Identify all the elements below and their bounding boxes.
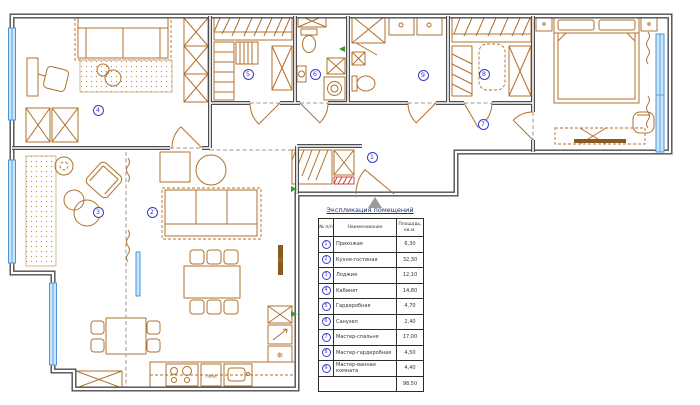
side-table <box>160 152 190 182</box>
room-marker-5: 5 <box>243 69 254 80</box>
master-bathroom-furniture <box>352 16 442 91</box>
curtain <box>647 32 650 64</box>
doors <box>172 103 533 194</box>
vanity-sink <box>389 16 414 35</box>
room-marker-8: 8 <box>479 69 490 80</box>
curtain <box>127 230 130 262</box>
table-total-row: 98,50 <box>319 376 424 392</box>
vanity-sink <box>417 16 442 35</box>
wardrobe-room-furniture <box>214 18 292 100</box>
plant <box>55 157 73 175</box>
row-number-circle: 1 <box>322 240 331 249</box>
master-bedroom-furniture <box>536 17 657 144</box>
bathroom-furniture <box>297 15 345 100</box>
toilet <box>352 76 357 91</box>
row-number-circle: 6 <box>322 317 331 326</box>
room-table-body: 1Прихожая6,302Кухня-гостиная32,303Лоджия… <box>319 237 424 392</box>
room-marker-4: 4 <box>93 105 104 116</box>
pouf <box>64 190 84 210</box>
row-number-circle: 7 <box>322 333 331 342</box>
hallway-furniture <box>292 150 354 184</box>
entrance-door <box>356 170 394 194</box>
nightstand <box>641 18 657 31</box>
office-furniture <box>26 16 208 142</box>
table-row: 3Лоджия12,10 <box>319 268 424 284</box>
toilet <box>301 29 317 35</box>
row-number-circle: 5 <box>322 302 331 311</box>
col-header-num: № п/п <box>319 219 334 237</box>
table-title: Экспликация помещений <box>318 206 422 214</box>
table-row: 2Кухня-гостиная32,30 <box>319 252 424 268</box>
room-schedule-table: № п/п Наименование Площадь, кв.м. 1Прихо… <box>318 218 424 392</box>
row-number-circle: 9 <box>322 364 331 373</box>
room-marker-1: 1 <box>367 152 378 163</box>
room-marker-6: 6 <box>310 69 321 80</box>
living-kitchen-furniture: ПММ ❄ <box>91 152 297 388</box>
room-marker-7: 7 <box>478 119 489 130</box>
master-wardrobe-furniture <box>452 18 531 96</box>
office-chair <box>43 66 70 93</box>
room-marker-9: 9 <box>418 70 429 81</box>
table-header-row: № п/п Наименование Площадь, кв.м. <box>319 219 424 237</box>
nightstand <box>536 18 552 31</box>
floor-plan-page: { "plan": { "rooms": [ {"num":"1","name"… <box>0 0 700 405</box>
freezer-icon: ❄ <box>277 351 284 360</box>
office-rug <box>80 60 172 92</box>
sofa <box>165 190 257 236</box>
room-marker-3: 3 <box>93 207 104 218</box>
room-marker-2: 2 <box>147 207 158 218</box>
room-schedule: Экспликация помещений № п/п Наименование… <box>318 206 422 392</box>
row-number-circle: 8 <box>322 348 331 357</box>
table-row: 8Мастер-гардеробная4,50 <box>319 345 424 361</box>
tv <box>574 139 626 143</box>
table-row: 1Прихожая6,30 <box>319 237 424 253</box>
row-number-circle: 4 <box>322 286 331 295</box>
row-number-circle: 3 <box>322 271 331 280</box>
dishwasher-label: ПММ <box>205 374 216 380</box>
planter-strip <box>26 156 56 266</box>
round-table <box>196 155 226 185</box>
table-row: 6Санузел2,40 <box>319 314 424 330</box>
table-row: 7Мастер-спальня17,00 <box>319 330 424 346</box>
table-row: 9Мастер-ванная комната4,40 <box>319 361 424 377</box>
dining-table <box>184 266 240 298</box>
row-number-circle: 2 <box>322 255 331 264</box>
table-row: 5Гардеробная4,70 <box>319 299 424 315</box>
col-header-name: Наименование <box>334 219 397 237</box>
curtain <box>127 158 130 182</box>
col-header-area: Площадь, кв.м. <box>397 219 424 237</box>
office-desk <box>27 58 38 96</box>
table-row: 4Кабинет14,80 <box>319 283 424 299</box>
